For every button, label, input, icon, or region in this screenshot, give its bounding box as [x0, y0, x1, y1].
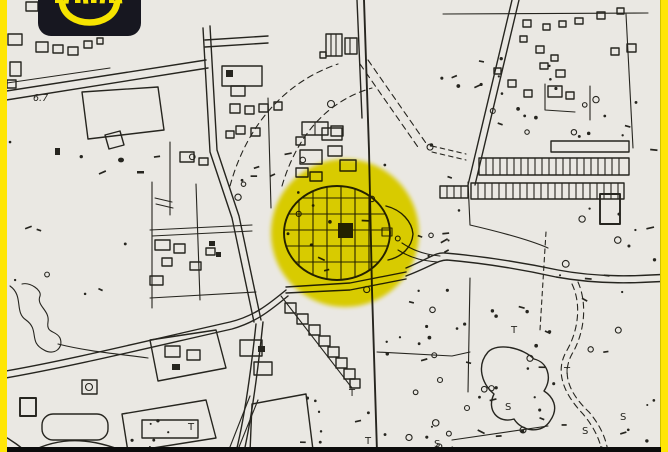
terrain-mark	[84, 293, 87, 296]
terrain-mark	[320, 430, 322, 432]
terrain-mark	[552, 382, 555, 385]
terrain-mark	[399, 336, 401, 338]
terrain-mark	[534, 396, 536, 398]
terrain-mark	[418, 342, 421, 345]
terrain-mark	[456, 84, 460, 88]
terrain-mark	[430, 143, 434, 147]
terrain-mark	[653, 399, 656, 402]
terrain-mark	[494, 314, 498, 318]
terrain-mark	[386, 352, 389, 355]
map-symbol-t: T	[563, 366, 571, 377]
frame-border-right	[661, 0, 668, 452]
terrain-mark	[300, 441, 306, 443]
terrain-mark	[617, 213, 620, 216]
terrain-mark	[440, 77, 443, 80]
terrain-mark	[14, 279, 16, 281]
map-symbol-t: T	[187, 422, 195, 433]
terrain-mark	[124, 242, 127, 245]
terrain-mark	[549, 78, 552, 81]
terrain-mark	[627, 428, 630, 431]
frame-bottom-bar	[7, 447, 661, 452]
screenshot-root: TTTTTSSSS 6.7	[0, 0, 668, 452]
terrain-mark	[646, 404, 648, 406]
terrain-mark	[428, 336, 432, 340]
map-symbol-t: T	[348, 388, 356, 399]
terrain-mark	[501, 92, 504, 95]
terrain-mark	[456, 327, 459, 330]
terrain-mark	[386, 341, 388, 343]
terrain-mark	[587, 132, 591, 136]
terrain-mark	[167, 431, 169, 433]
logo-badge	[38, 0, 141, 36]
terrain-mark	[384, 433, 387, 436]
terrain-mark	[251, 175, 258, 177]
terrain-mark	[645, 439, 648, 442]
spot-elevation-label: 6.7	[33, 93, 48, 104]
terrain-mark	[562, 424, 567, 426]
terrain-mark	[621, 134, 623, 136]
frame-border-left	[0, 0, 7, 452]
terrain-mark	[458, 209, 461, 212]
terrain-mark	[463, 322, 466, 325]
terrain-mark	[538, 408, 541, 411]
map-symbol-t: T	[510, 325, 518, 336]
map-symbol-t: T	[364, 436, 372, 447]
terrain-mark	[446, 289, 449, 292]
terrain-mark	[9, 141, 12, 144]
terrain-mark	[383, 164, 386, 167]
terrain-mark	[627, 245, 630, 248]
terrain-mark	[431, 426, 433, 428]
terrain-mark	[427, 255, 429, 257]
terrain-mark	[318, 411, 320, 413]
terrain-mark	[527, 367, 530, 370]
terrain-mark	[478, 396, 481, 399]
map-symbol-s: S	[505, 402, 511, 413]
terrain-mark	[534, 344, 538, 348]
terrain-mark	[521, 429, 525, 433]
smile-icon	[62, 3, 117, 23]
map-symbol-s: S	[582, 426, 588, 437]
terrain-mark	[80, 155, 83, 158]
terrain-mark	[319, 441, 322, 444]
terrain-mark	[156, 419, 159, 422]
terrain-mark	[653, 258, 656, 261]
terrain-mark	[523, 114, 526, 117]
terrain-mark	[152, 439, 155, 442]
terrain-mark	[578, 135, 581, 138]
terrain-mark	[55, 148, 59, 152]
terrain-mark	[491, 309, 494, 312]
terrain-mark	[554, 87, 557, 90]
terrain-mark	[588, 207, 590, 209]
terrain-mark	[500, 57, 503, 60]
city-map-scan: TTTTTSSSS 6.7	[0, 0, 668, 452]
terrain-mark	[634, 229, 636, 231]
terrain-mark	[498, 75, 500, 77]
terrain-mark	[314, 400, 317, 403]
terrain-mark	[539, 366, 546, 368]
highlight-circle	[271, 159, 419, 307]
terrain-mark	[241, 179, 244, 182]
terrain-mark	[417, 290, 419, 292]
terrain-mark	[367, 411, 370, 414]
terrain-mark	[425, 436, 428, 439]
terrain-mark	[603, 115, 606, 118]
terrain-mark	[635, 101, 638, 104]
terrain-mark	[516, 107, 520, 111]
terrain-mark	[425, 325, 428, 328]
terrain-mark	[525, 310, 528, 313]
terrain-mark	[621, 291, 623, 293]
terrain-mark	[559, 274, 561, 276]
terrain-mark	[534, 116, 538, 120]
terrain-mark	[130, 439, 133, 442]
terrain-mark	[494, 386, 497, 389]
terrain-mark	[548, 65, 550, 67]
terrain-mark	[150, 423, 152, 425]
terrain-mark	[306, 397, 309, 400]
map-symbol-s: S	[620, 412, 626, 423]
